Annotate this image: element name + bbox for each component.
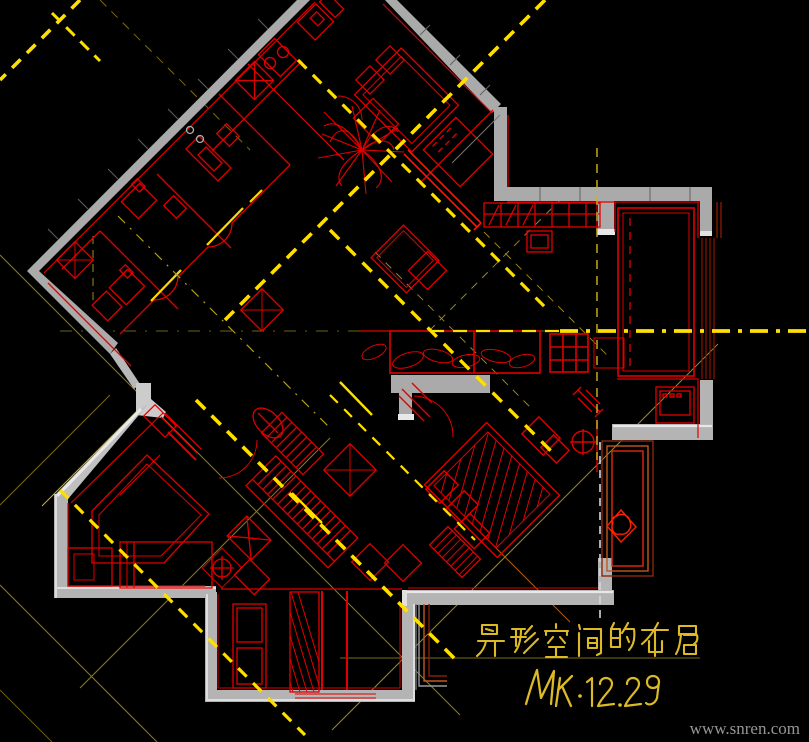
svg-text:www.snren.com: www.snren.com <box>690 719 800 738</box>
